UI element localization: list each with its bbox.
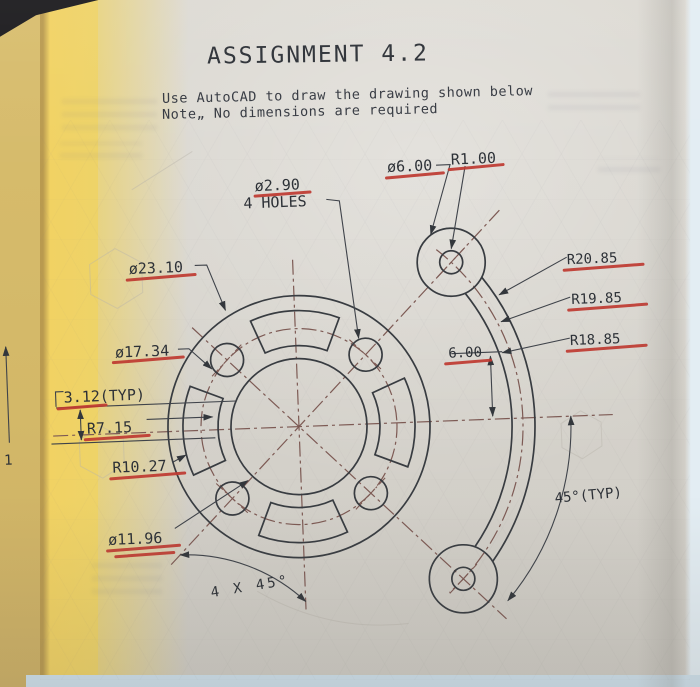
facing-page-number-fragment: 1: [4, 453, 13, 469]
arm-inner-arc: [465, 292, 516, 547]
leader-arm-outer: [498, 257, 568, 295]
leader-pad-outer: [172, 455, 186, 463]
cad-drawing: 1: [0, 0, 700, 687]
label-slot-end-dia: ø6.00: [387, 156, 433, 176]
horizontal-centerline: [53, 415, 613, 436]
cad-drawing-tilt-wrapper: 1: [0, 0, 700, 687]
ext-line-pad-bottom: [51, 438, 215, 444]
facing-page-fragment: 1: [0, 347, 13, 469]
leader-pad-inner: [147, 417, 213, 420]
label-pad-outer: R10.27: [112, 457, 167, 477]
label-arm-inner: R18.85: [570, 331, 621, 349]
dim-arc-end-angle: [501, 416, 578, 601]
label-bore-dia: ø11.96: [108, 529, 163, 549]
leader-arm-inner: [502, 338, 570, 353]
label-pad-inner: R7.15: [87, 418, 133, 438]
label-pad-thickness: 3.12(TYP): [63, 385, 145, 406]
leader-slot-end-radius: [448, 166, 468, 249]
label-arm-width: 6.00: [448, 345, 482, 362]
leader-hole-dia: [326, 198, 358, 339]
label-hole-count: 4 HOLES: [243, 192, 307, 212]
book-photo: ASSIGNMENT 4.2 Use AutoCAD to draw the d…: [0, 0, 700, 687]
label-slot-end-rad: R1.00: [451, 149, 497, 169]
label-pad-angle: 4 X 45°: [210, 572, 292, 601]
leader-arm-mid: [500, 297, 571, 322]
label-outer-dia: ø23.10: [128, 258, 183, 278]
label-arm-mid: R19.85: [571, 290, 622, 308]
label-bolt-dia: ø17.34: [115, 342, 170, 362]
label-arm-outer: R20.85: [566, 250, 617, 268]
diagonal-centerline-ne: [158, 209, 514, 565]
leader-outer-dia: [195, 264, 226, 311]
dim-arm-width: [490, 356, 492, 416]
bleed-through-shapes: [68, 136, 608, 636]
